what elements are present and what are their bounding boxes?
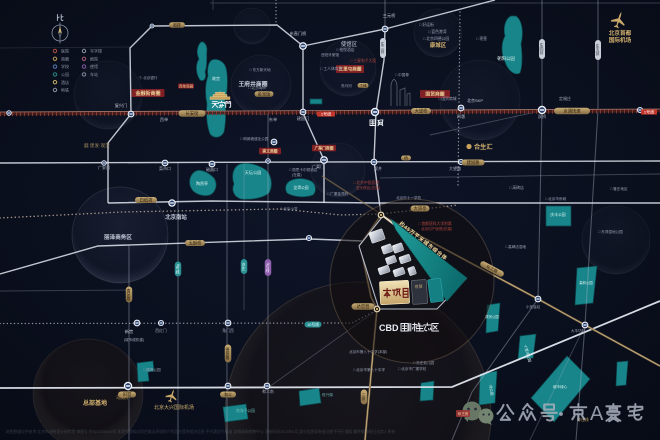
svg-text:□ 广渠金茂府: □ 广渠金茂府 bbox=[327, 191, 349, 196]
svg-text:达官营: 达官营 bbox=[357, 303, 371, 310]
svg-text:金融街商圈: 金融街商圈 bbox=[134, 90, 160, 97]
svg-text:地图数据仅供参考 北京市测绘设计研究院 审图号:京S(202: 地图数据仅供参考 北京市测绘设计研究院 审图号:京S(2023)046号 本宣传… bbox=[6, 429, 395, 434]
svg-text:学校: 学校 bbox=[61, 63, 69, 69]
svg-text:北京市十一学校: 北京市十一学校 bbox=[396, 195, 422, 200]
svg-text:世贸: 世贸 bbox=[414, 283, 422, 290]
svg-text:广安门: 广安门 bbox=[98, 164, 110, 170]
svg-text:① 北京银行: ① 北京银行 bbox=[139, 75, 158, 80]
svg-text:□ 北京华侨城: □ 北京华侨城 bbox=[545, 196, 567, 201]
svg-text:复兴门: 复兴门 bbox=[115, 102, 128, 109]
svg-text:工体: 工体 bbox=[359, 83, 367, 88]
svg-text:马驹桥: 马驹桥 bbox=[116, 394, 128, 400]
svg-text:西红门: 西红门 bbox=[155, 328, 167, 333]
svg-text:双桥: 双桥 bbox=[538, 113, 547, 120]
svg-text:□ 首都医科大学附属: □ 首都医科大学附属 bbox=[418, 221, 452, 226]
svg-text:□ 高碑店湿地: □ 高碑店湿地 bbox=[505, 244, 527, 249]
svg-text:双井: 双井 bbox=[374, 165, 382, 171]
svg-text:医院: 医院 bbox=[61, 48, 69, 54]
svg-text:5号线: 5号线 bbox=[265, 263, 270, 273]
svg-text:三元桥: 三元桥 bbox=[383, 12, 396, 19]
svg-text:□ 枣营: □ 枣营 bbox=[476, 36, 487, 41]
svg-text:北京妇产医院(在建): 北京妇产医院(在建) bbox=[421, 226, 452, 231]
svg-text:白纸坊: 白纸坊 bbox=[140, 196, 154, 203]
svg-text:亦庄: 亦庄 bbox=[241, 262, 246, 271]
svg-text:东直门桥: 东直门桥 bbox=[290, 30, 308, 37]
svg-text:北京SKP: 北京SKP bbox=[467, 97, 483, 103]
svg-text:□ 好运街: □ 好运街 bbox=[419, 22, 434, 27]
svg-text:康城区: 康城区 bbox=[430, 41, 447, 49]
svg-text:角门西: 角门西 bbox=[222, 328, 234, 333]
svg-text:□ 北京apm: □ 北京apm bbox=[248, 85, 266, 90]
svg-text:西班牙使馆: 西班牙使馆 bbox=[321, 52, 339, 57]
svg-text:南海子公园: 南海子公园 bbox=[236, 408, 255, 413]
svg-text:□ 高碑店: □ 高碑店 bbox=[509, 185, 524, 190]
svg-text:公园: 公园 bbox=[61, 71, 69, 77]
svg-text:大羊坊站: 大羊坊站 bbox=[571, 328, 586, 333]
svg-text:玉蜓桥: 玉蜓桥 bbox=[189, 239, 203, 246]
svg-text:国际机场: 国际机场 bbox=[609, 36, 632, 44]
svg-text:三环: 三环 bbox=[361, 393, 366, 401]
svg-text:□ 管庄地区: □ 管庄地区 bbox=[610, 186, 628, 191]
svg-text:写字楼: 写字楼 bbox=[90, 48, 102, 54]
svg-text:□ 明城墙遗址公园: □ 明城墙遗址公园 bbox=[240, 136, 269, 141]
svg-text:剧院: 剧院 bbox=[90, 55, 98, 61]
svg-text:总部基地: 总部基地 bbox=[83, 399, 107, 407]
svg-text:北京大兴国际机场: 北京大兴国际机场 bbox=[154, 404, 194, 411]
svg-text:南苑路: 南苑路 bbox=[126, 288, 131, 301]
svg-text:东五环: 东五环 bbox=[596, 43, 601, 57]
svg-text:□ 三星电子大厦: □ 三星电子大厦 bbox=[350, 58, 376, 63]
svg-text:合生汇: 合生汇 bbox=[474, 143, 493, 151]
svg-text:□ 北京小学: □ 北京小学 bbox=[280, 206, 298, 211]
svg-text:使馆区: 使馆区 bbox=[341, 40, 358, 48]
svg-text:□ 东郊湿地公园: □ 东郊湿地公园 bbox=[598, 229, 623, 234]
svg-text:滨河公园: 滨河公园 bbox=[485, 314, 499, 319]
svg-text:新宫: 新宫 bbox=[125, 328, 133, 335]
svg-text:长安街: 长安街 bbox=[186, 110, 200, 117]
svg-text:崇文商圈: 崇文商圈 bbox=[262, 148, 277, 153]
svg-text:(在建): (在建) bbox=[292, 172, 302, 177]
svg-text:广渠门商圈: 广渠门商圈 bbox=[315, 145, 334, 150]
svg-text:陶然亭: 陶然亭 bbox=[196, 180, 208, 186]
svg-text:西单: 西单 bbox=[160, 116, 168, 123]
svg-text:德贤路: 德贤路 bbox=[225, 347, 230, 360]
svg-text:小圣庙站: 小圣庙站 bbox=[526, 304, 541, 309]
svg-text:商圈: 商圈 bbox=[61, 55, 69, 61]
svg-text:囍 建发·观堂: 囍 建发·观堂 bbox=[84, 142, 110, 149]
svg-text:东四环: 东四环 bbox=[540, 42, 545, 56]
svg-text:□ 丽思卡尔顿酒店: □ 丽思卡尔顿酒店 bbox=[289, 167, 318, 172]
svg-text:使馆: 使馆 bbox=[90, 63, 98, 69]
svg-text:□ 德贤公园: □ 德贤公园 bbox=[143, 367, 161, 372]
svg-text:□ 工人体育场: □ 工人体育场 bbox=[320, 66, 343, 71]
svg-text:□ 柏悦酒店: □ 柏悦酒店 bbox=[336, 47, 355, 52]
svg-text:□ 北京市第八十中学: □ 北京市第八十中学 bbox=[353, 367, 385, 372]
svg-text:10号线: 10号线 bbox=[307, 322, 319, 327]
svg-text:建国路: 建国路 bbox=[467, 159, 481, 166]
svg-text:东单: 东单 bbox=[269, 116, 277, 123]
svg-text:城市绿心: 城市绿心 bbox=[553, 384, 568, 389]
svg-text:大望桥: 大望桥 bbox=[415, 107, 429, 114]
svg-text:京通快速: 京通快速 bbox=[563, 107, 581, 114]
svg-text:亮马河: 亮马河 bbox=[341, 83, 352, 88]
svg-text:故宫: 故宫 bbox=[212, 75, 220, 81]
svg-text:□ 中国尊: □ 中国尊 bbox=[395, 72, 409, 77]
svg-text:□ 北京四德公园: □ 北京四德公园 bbox=[423, 36, 449, 41]
svg-text:1号线: 1号线 bbox=[321, 111, 331, 117]
svg-text:酒店: 酒店 bbox=[61, 79, 69, 85]
svg-text:(城市候机楼): (城市候机楼) bbox=[124, 337, 144, 342]
svg-text:鼓楼: 鼓楼 bbox=[173, 22, 181, 27]
svg-text:□ 北京市广渠学校: □ 北京市广渠学校 bbox=[398, 366, 427, 371]
svg-text:大郊亭: 大郊亭 bbox=[414, 205, 428, 212]
svg-text:□ 蓝色港湾: □ 蓝色港湾 bbox=[428, 29, 447, 34]
svg-text:菜市口: 菜市口 bbox=[159, 165, 171, 171]
svg-text:8号线: 8号线 bbox=[175, 264, 180, 274]
svg-text:垡头院区(在建): 垡头院区(在建) bbox=[356, 185, 380, 190]
svg-text:旺兴湖: 旺兴湖 bbox=[322, 392, 333, 397]
svg-text:车站: 车站 bbox=[90, 71, 98, 77]
svg-text:东三环: 东三环 bbox=[381, 41, 386, 55]
svg-text:地铁: 地铁 bbox=[61, 87, 69, 93]
svg-text:天坛公园: 天坛公园 bbox=[245, 169, 262, 176]
svg-text:四惠: 四惠 bbox=[457, 113, 465, 119]
svg-text:北京南站: 北京南站 bbox=[165, 213, 187, 221]
svg-text:龙潭公园: 龙潭公园 bbox=[293, 185, 308, 190]
svg-text:和义: 和义 bbox=[224, 392, 232, 397]
svg-text:丽泽商务区: 丽泽商务区 bbox=[104, 233, 132, 241]
svg-text:磁器口: 磁器口 bbox=[206, 166, 218, 172]
svg-text:森林公园: 森林公园 bbox=[579, 280, 593, 285]
svg-text:庆丰公园: 庆丰公园 bbox=[550, 212, 565, 217]
svg-text:和义南: 和义南 bbox=[262, 389, 274, 394]
svg-text:北京市第八十中学(本部): 北京市第八十中学(本部) bbox=[349, 349, 387, 354]
svg-text:□ 国贸商城: □ 国贸商城 bbox=[438, 96, 457, 101]
svg-text:建国门: 建国门 bbox=[297, 115, 310, 122]
svg-text:1号线: 1号线 bbox=[644, 109, 654, 115]
svg-text:桥: 桥 bbox=[404, 155, 408, 160]
svg-text:□ 北京中医医院: □ 北京中医医院 bbox=[353, 180, 379, 185]
svg-text:北京首都: 北京首都 bbox=[609, 29, 632, 37]
svg-text:CBD: CBD bbox=[379, 323, 399, 333]
svg-text:朝阳公园: 朝阳公园 bbox=[497, 55, 515, 62]
svg-text:A: A bbox=[590, 403, 604, 425]
svg-text:大望路: 大望路 bbox=[449, 165, 461, 171]
svg-text:□ 东方新天地: □ 东方新天地 bbox=[249, 67, 271, 72]
svg-text:□ 亦庄幼儿园: □ 亦庄幼儿园 bbox=[413, 360, 435, 365]
svg-text:恭王府: 恭王府 bbox=[458, 411, 469, 416]
svg-text:金宝街: 金宝街 bbox=[258, 90, 272, 97]
svg-text:西单商圈: 西单商圈 bbox=[179, 83, 194, 88]
svg-text:定福庄: 定福庄 bbox=[559, 95, 571, 101]
